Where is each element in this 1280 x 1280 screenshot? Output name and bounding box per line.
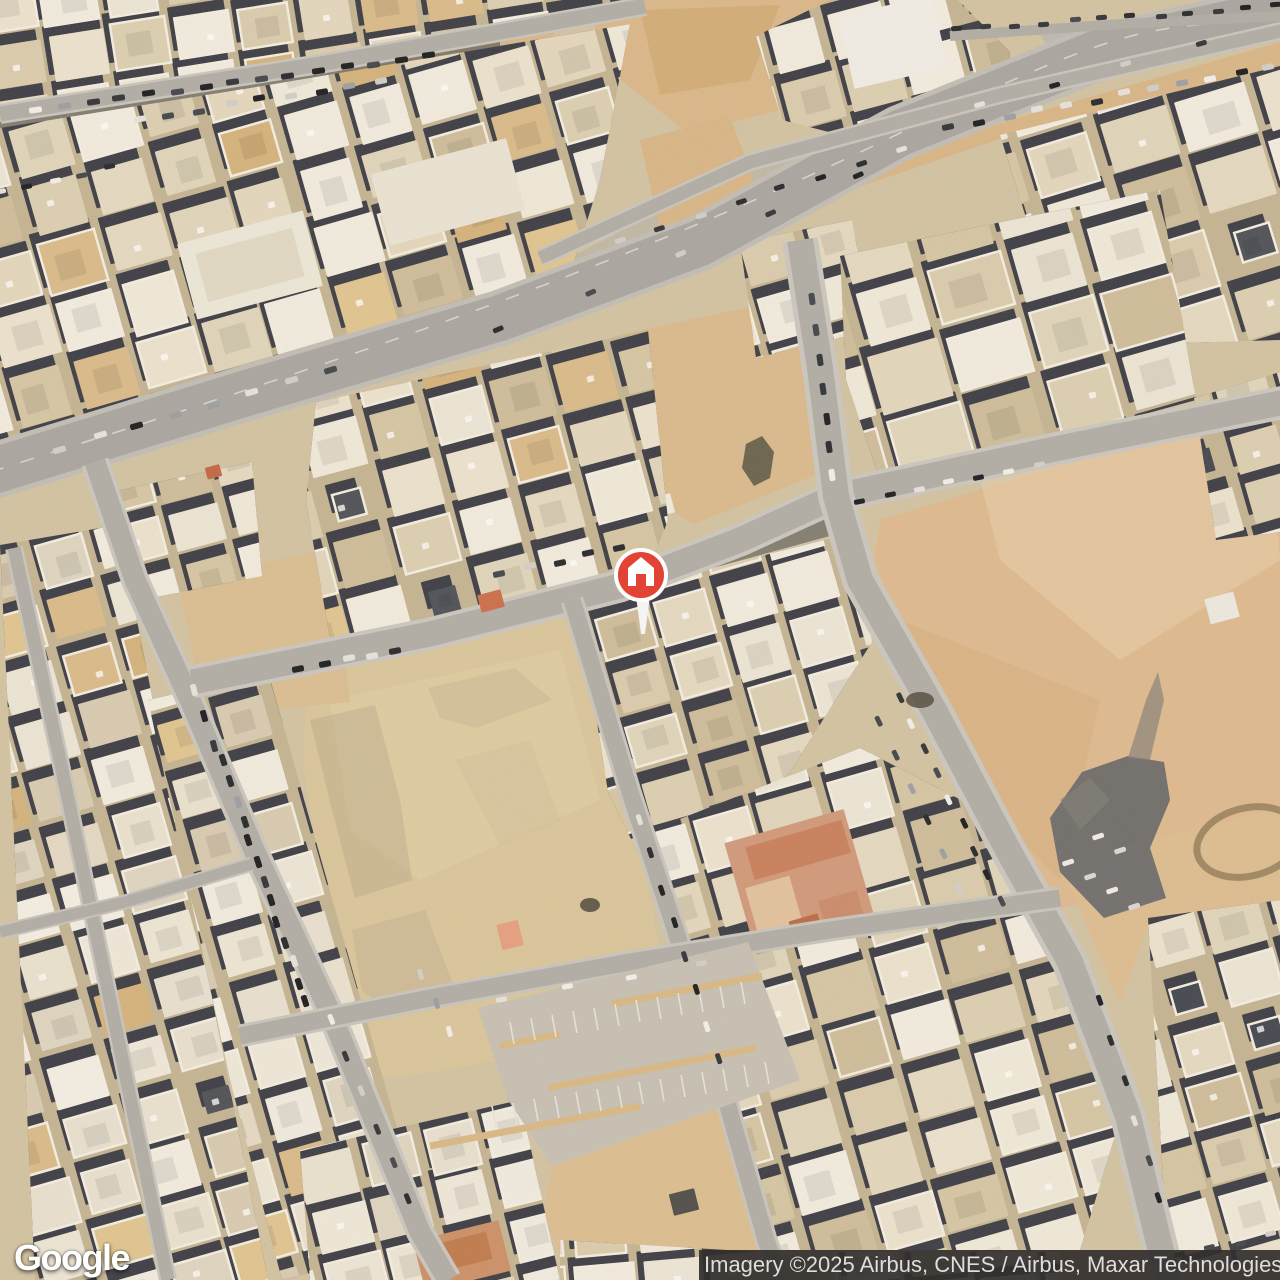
svg-text:Google: Google: [14, 1237, 129, 1278]
svg-text:Imagery ©2025 Airbus, CNES / A: Imagery ©2025 Airbus, CNES / Airbus, Max…: [704, 1252, 1280, 1277]
